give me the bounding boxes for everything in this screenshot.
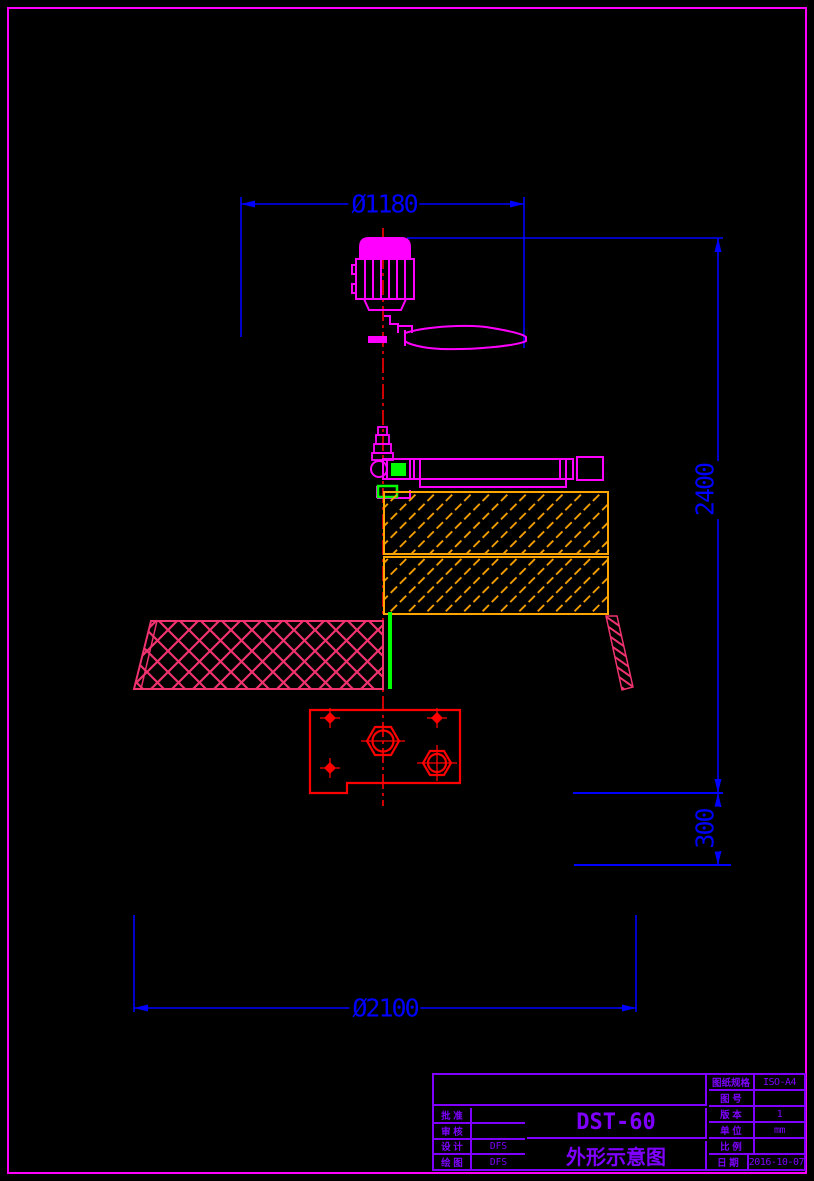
- title-row-date: 日 期 2016-10-07: [709, 1155, 804, 1169]
- support-leg: [606, 616, 633, 690]
- title-row-check: 审 核: [434, 1124, 525, 1140]
- title-block-signature-rows: 批 准 审 核 设 计 DFS 绘 图 DFS: [434, 1108, 525, 1169]
- dim-label-base-height: 300: [691, 806, 720, 851]
- title-block-info-rows: 图纸规格 ISO-A4 图 号 版 本 1 单 位 mm 比 例 日 期 201: [709, 1075, 804, 1169]
- bolt-marker: [320, 758, 340, 778]
- title-block: 批 准 审 核 设 计 DFS 绘 图 DFS DST-60 外形示意图 图纸规…: [432, 1073, 806, 1171]
- title-row-approve: 批 准: [434, 1108, 525, 1124]
- mounting-plate: [310, 708, 460, 793]
- title-block-blank-cell: [434, 1075, 707, 1106]
- cad-drawing-canvas: Ø1180 2400 300 Ø2100 批 准 审 核 设 计 DFS 绘 图…: [0, 0, 814, 1181]
- title-row-scale: 比 例: [709, 1139, 804, 1155]
- title-row-unit: 单 位 mm: [709, 1123, 804, 1139]
- shaft-line: [388, 612, 392, 689]
- propeller: [368, 316, 526, 349]
- title-row-paper-size: 图纸规格 ISO-A4: [709, 1075, 804, 1091]
- mesh-screen: [134, 621, 383, 689]
- title-drawing-name: 外形示意图: [527, 1141, 707, 1169]
- title-model-number: DST-60: [527, 1108, 707, 1139]
- dim-label-base-diameter: Ø2100: [349, 994, 420, 1023]
- title-row-drawing-no: 图 号: [709, 1091, 804, 1107]
- title-row-version: 版 本 1: [709, 1107, 804, 1123]
- gearbox-block: [391, 463, 406, 476]
- float-body: [384, 492, 608, 614]
- title-row-draw: 绘 图 DFS: [434, 1155, 525, 1169]
- dim-label-top-diameter: Ø1180: [348, 190, 419, 219]
- dim-label-overall-height: 2400: [691, 461, 720, 519]
- title-row-design: 设 计 DFS: [434, 1140, 525, 1156]
